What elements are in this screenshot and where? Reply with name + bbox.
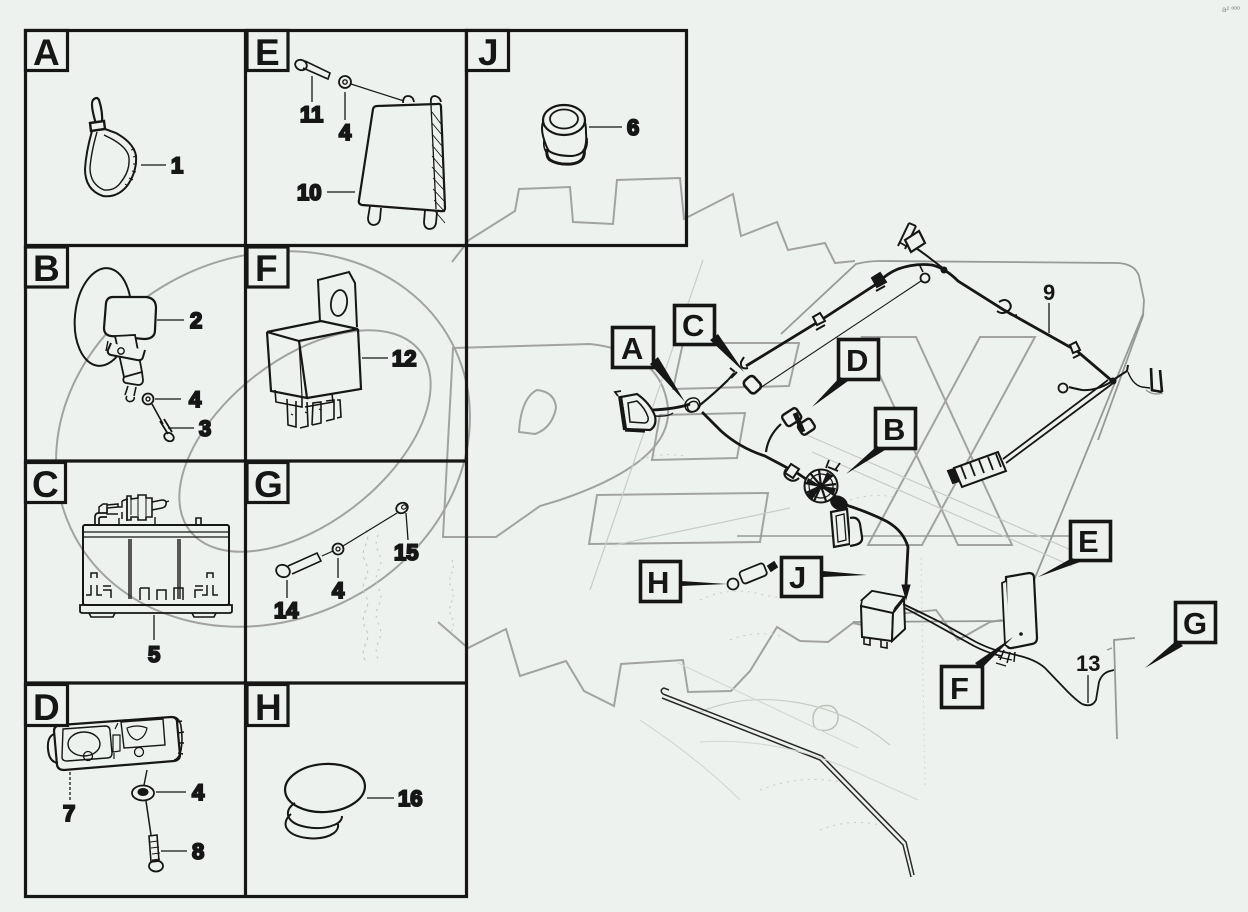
svg-text:4: 4 <box>332 578 345 603</box>
svg-text:4: 4 <box>339 120 352 145</box>
svg-text:13: 13 <box>1076 651 1100 676</box>
svg-text:12: 12 <box>392 346 416 371</box>
svg-text:3: 3 <box>199 416 211 441</box>
svg-text:B: B <box>33 248 60 289</box>
svg-text:J: J <box>789 560 806 595</box>
svg-text:8: 8 <box>192 839 204 864</box>
svg-text:F: F <box>255 248 278 289</box>
svg-text:4: 4 <box>189 387 202 412</box>
svg-text:14: 14 <box>274 598 299 623</box>
svg-text:10: 10 <box>297 180 321 205</box>
svg-text:A: A <box>33 32 60 73</box>
svg-text:9: 9 <box>1043 280 1055 305</box>
svg-text:G: G <box>254 464 283 505</box>
svg-text:C: C <box>682 308 704 343</box>
svg-text:16: 16 <box>398 786 422 811</box>
svg-text:D: D <box>846 343 868 378</box>
svg-text:15: 15 <box>394 540 418 565</box>
svg-text:E: E <box>1078 524 1099 559</box>
svg-text:1: 1 <box>171 153 183 178</box>
svg-text:4: 4 <box>192 780 205 805</box>
svg-text:D: D <box>33 687 60 728</box>
svg-text:B: B <box>883 412 905 447</box>
svg-text:A: A <box>621 331 643 366</box>
svg-text:2: 2 <box>190 308 202 333</box>
svg-text:6: 6 <box>627 115 639 140</box>
svg-text:H: H <box>255 687 282 728</box>
svg-text:G: G <box>1183 606 1207 641</box>
svg-text:C: C <box>32 464 59 505</box>
svg-text:5: 5 <box>148 642 160 667</box>
svg-text:J: J <box>478 32 499 73</box>
svg-text:H: H <box>647 565 669 600</box>
svg-text:F: F <box>950 671 969 706</box>
svg-text:11: 11 <box>300 102 323 127</box>
svg-text:E: E <box>255 32 280 73</box>
svg-text:7: 7 <box>63 801 75 826</box>
svg-text:a² ººº: a² ººº <box>1222 5 1240 14</box>
